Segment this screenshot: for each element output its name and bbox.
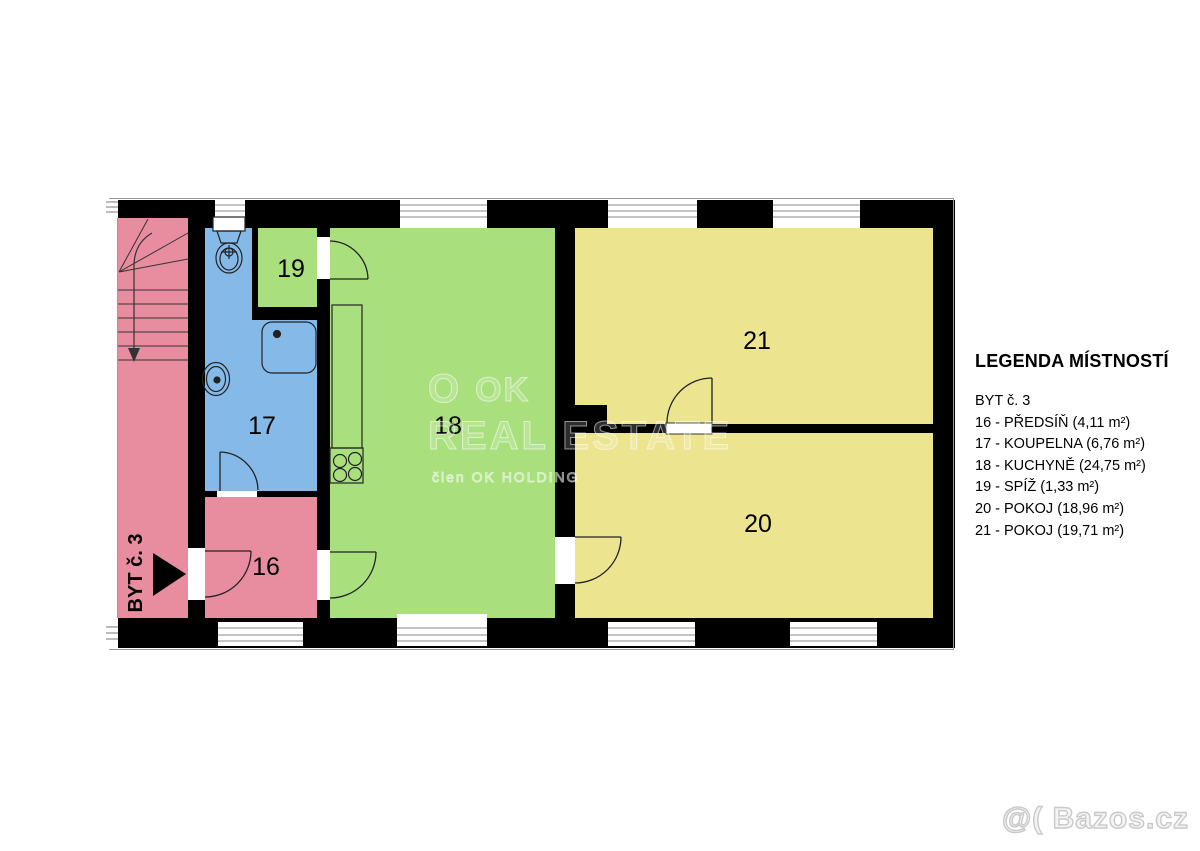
room-label-19: 19 [277,255,305,283]
room-fills [118,218,933,618]
legend: LEGENDA MÍSTNOSTÍ BYT č. 3 16 - PŘEDSÍŇ … [975,351,1200,542]
window [397,614,487,646]
legend-title: LEGENDA MÍSTNOSTÍ [975,351,1200,371]
legend-item: 19 - SPÍŽ (1,33 m²) [975,477,1200,499]
legend-item: 18 - KUCHYNĚ (24,75 m²) [975,456,1200,478]
room-label-20: 20 [744,510,772,538]
legend-item: 20 - POKOJ (18,96 m²) [975,499,1200,521]
legend-item: 21 - POKOJ (19,71 m²) [975,521,1200,543]
window [400,200,487,228]
section-ticks [106,202,118,639]
apartment-label: BYT č. 3 [125,534,147,613]
room-label-17: 17 [248,412,276,440]
window [773,200,860,228]
room-label-18: 18 [434,412,462,440]
room-label-21: 21 [743,327,771,355]
window [790,622,877,646]
legend-item: 17 - KOUPELNA (6,76 m²) [975,434,1200,456]
legend-apartment: BYT č. 3 [975,391,1200,413]
window [218,622,303,646]
legend-item: 16 - PŘEDSÍŇ (4,11 m²) [975,413,1200,435]
window [608,622,695,646]
legend-items: 16 - PŘEDSÍŇ (4,11 m²) 17 - KOUPELNA (6,… [975,413,1200,543]
room-21 [575,228,933,424]
window [608,200,697,228]
room-label-16: 16 [252,553,280,581]
